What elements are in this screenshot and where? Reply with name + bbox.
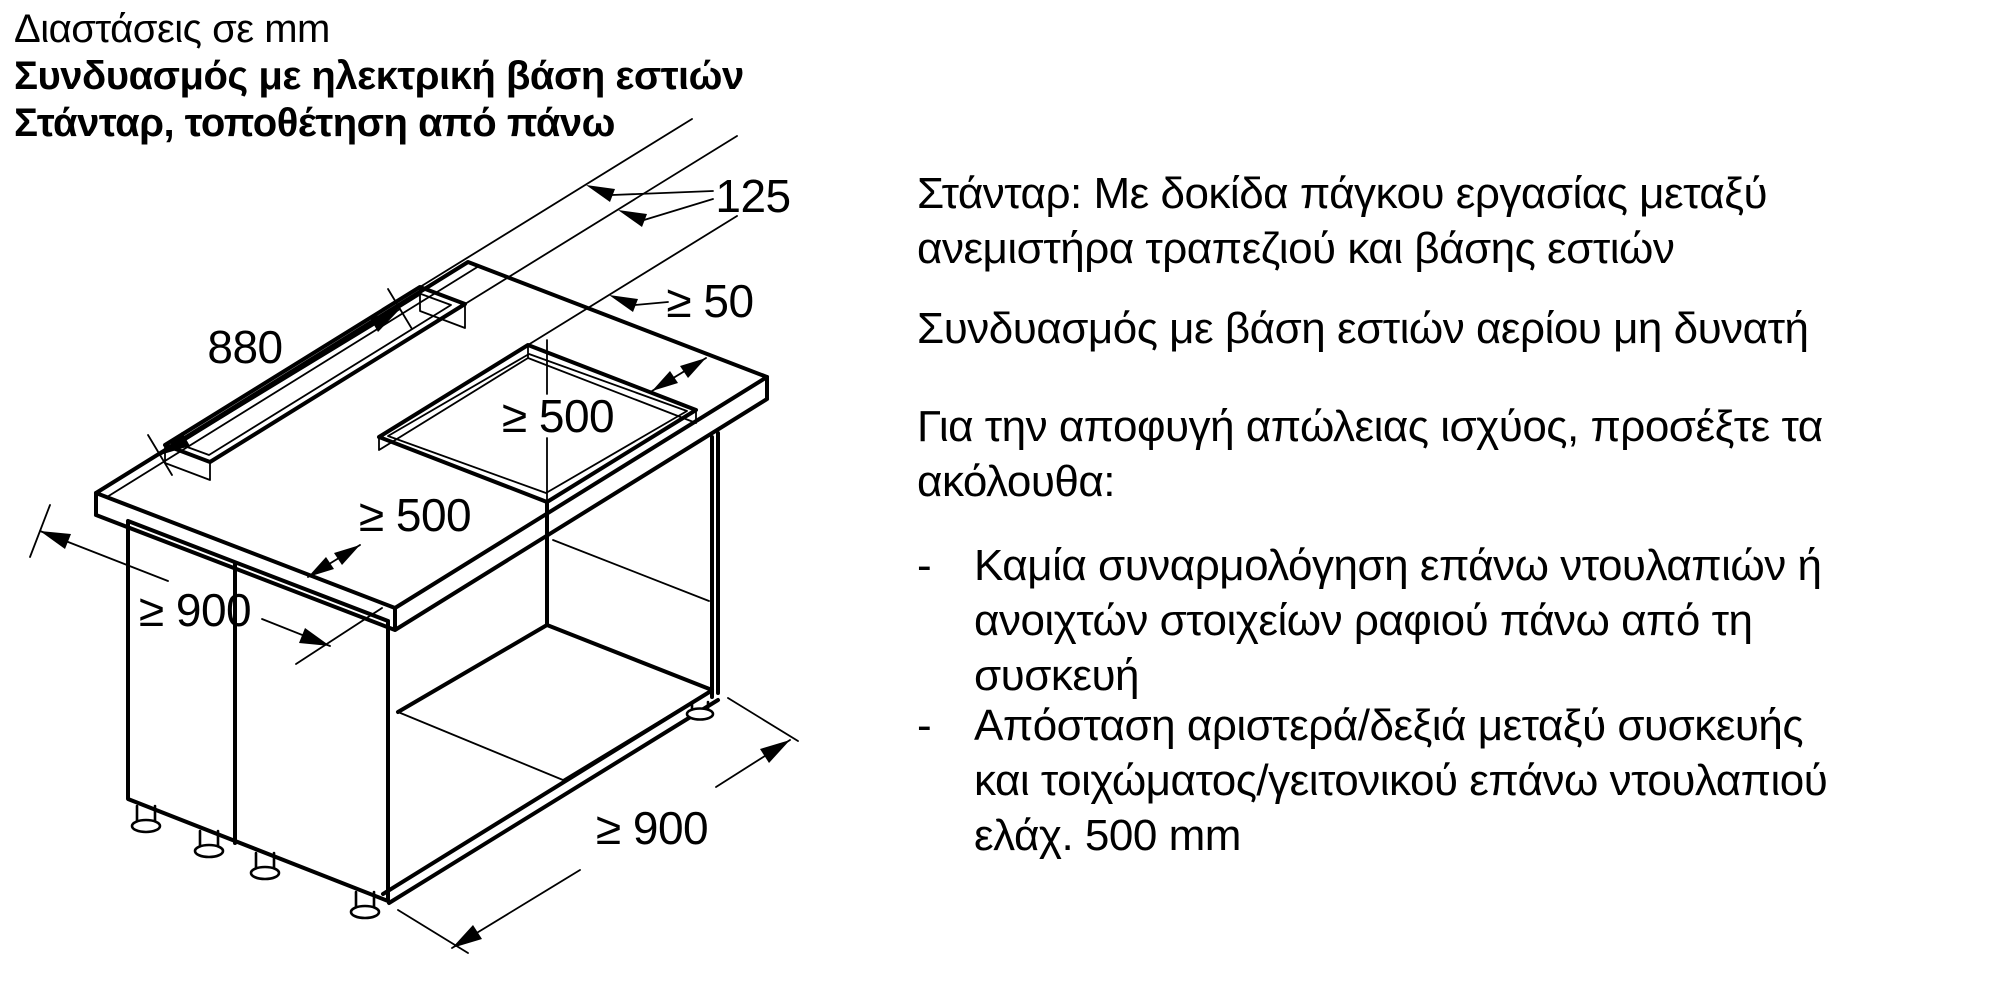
dim-slot-length-label: 880	[207, 321, 282, 373]
note-standard-beam: Στάνταρ: Με δοκίδα πάγκου εργασίας μεταξ…	[917, 166, 1987, 276]
bullet-dash: -	[917, 538, 974, 703]
bullet-text: Καμία συναρμολόγηση επάνω ντουλαπιών ή α…	[974, 538, 1821, 703]
note-gas-hob: Συνδυασμός με βάση εστιών αερίου μη δυνα…	[917, 301, 1987, 356]
note-power-loss: Για την αποφυγή απώλειας ισχύος, προσέξτ…	[917, 399, 1987, 509]
note-line: Στάνταρ: Με δοκίδα πάγκου εργασίας μεταξ…	[917, 166, 1987, 221]
note-line: ακόλουθα:	[917, 454, 1987, 509]
note-line: ανοιχτών στοιχείων ραφιού πάνω από τη	[974, 593, 1821, 648]
bullet-no-cabinets-above: - Καμία συναρμολόγηση επάνω ντουλαπιών ή…	[917, 538, 1987, 703]
bullet-side-distance: - Απόσταση αριστερά/δεξιά μεταξύ συσκευή…	[917, 698, 1987, 863]
note-line: συσκευή	[974, 648, 1821, 703]
note-line: Απόσταση αριστερά/δεξιά μεταξύ συσκευής	[974, 698, 1827, 753]
dim-slot-width-label: 125	[715, 170, 790, 222]
dim-worktop-depth-label: ≥ 900	[139, 584, 251, 636]
dim-slot-gap-label: ≥ 50	[666, 275, 753, 327]
dim-cabinet-width-label: ≥ 900	[596, 802, 708, 854]
dim-clearance-back-label: ≥ 500	[502, 390, 614, 442]
bullet-text: Απόσταση αριστερά/δεξιά μεταξύ συσκευής …	[974, 698, 1827, 863]
note-line: Καμία συναρμολόγηση επάνω ντουλαπιών ή	[974, 538, 1821, 593]
note-line: ανεμιστήρα τραπεζιού και βάσης εστιών	[917, 221, 1987, 276]
dim-clearance-front-label: ≥ 500	[359, 489, 471, 541]
note-line: Συνδυασμός με βάση εστιών αερίου μη δυνα…	[917, 301, 1987, 356]
note-line: Για την αποφυγή απώλειας ισχύος, προσέξτ…	[917, 399, 1987, 454]
bullet-dash: -	[917, 698, 974, 863]
note-line: και τοιχώματος/γειτονικού επάνω ντουλαπι…	[974, 753, 1827, 808]
installation-diagram: 125 ≥ 50 880 ≥ 500 ≥ 500 ≥ 900 ≥ 900	[0, 0, 820, 1000]
note-line: ελάχ. 500 mm	[974, 808, 1827, 863]
